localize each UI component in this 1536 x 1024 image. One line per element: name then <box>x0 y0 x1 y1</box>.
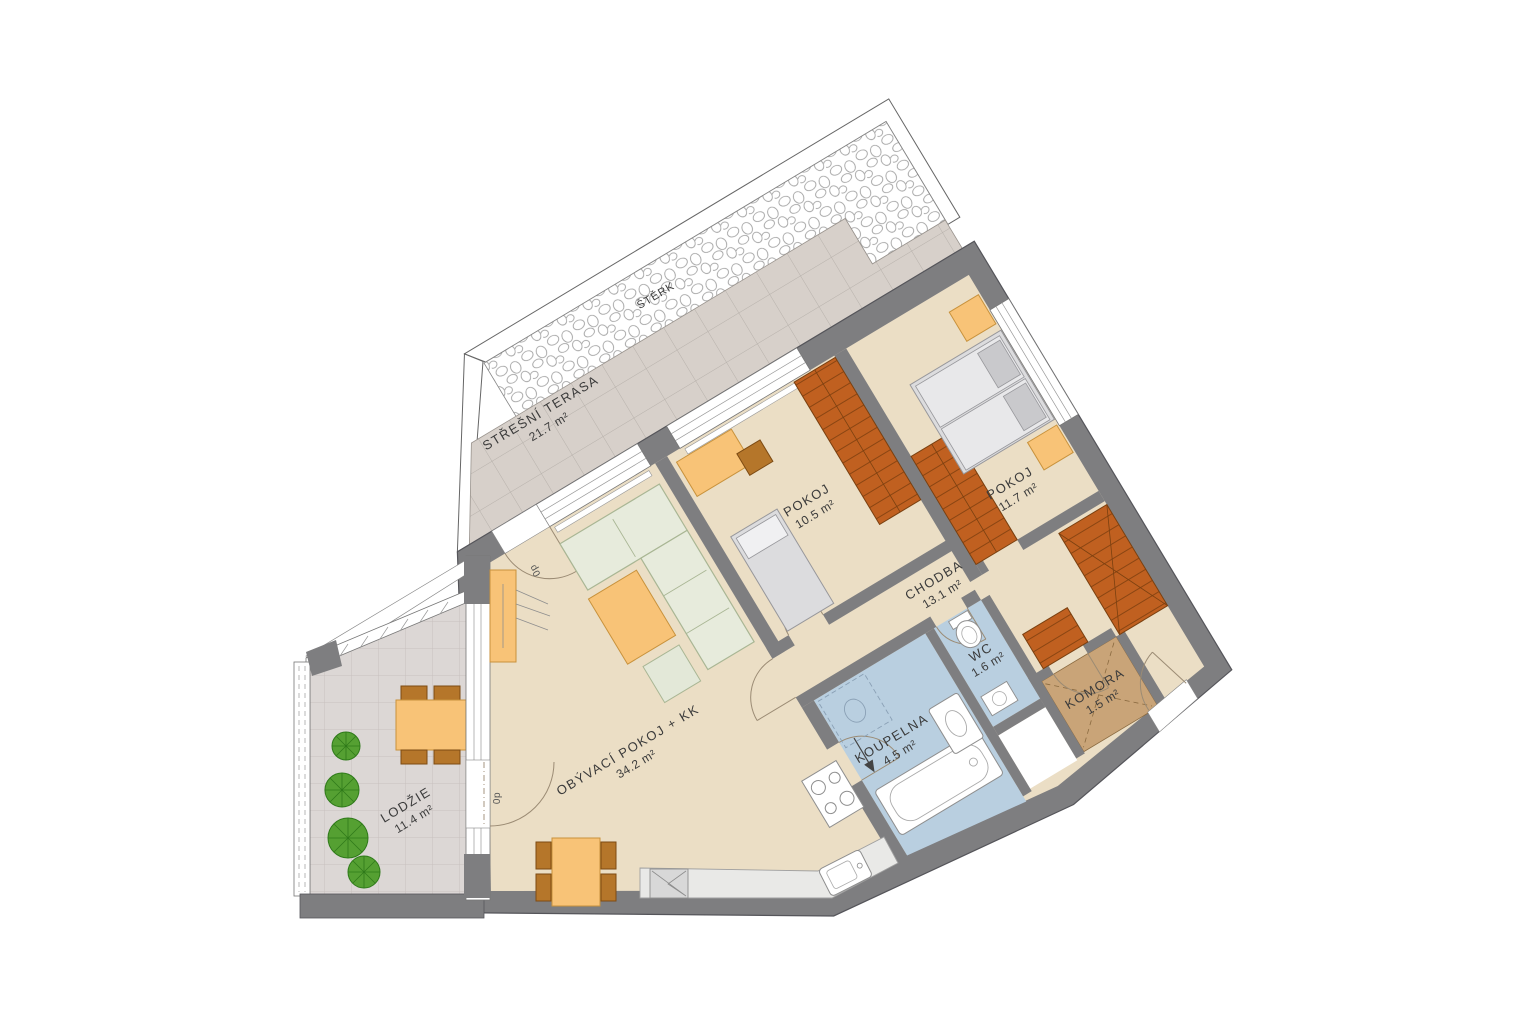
dining-chair-1 <box>536 842 551 869</box>
dining-chair-4 <box>601 874 616 901</box>
dining-chair-3 <box>601 842 616 869</box>
plant-3 <box>328 818 368 858</box>
plant-1 <box>332 732 360 760</box>
loggia-chair-2 <box>434 686 460 700</box>
dining-chair-2 <box>536 874 551 901</box>
plant-4 <box>348 856 380 888</box>
floorplan-page: STŘEŠNÍ TERASA 21.7 m² ŠTĚRK <box>0 0 1536 1024</box>
glass-wall-stub-bottom <box>464 854 490 898</box>
loggia-window-band <box>466 556 490 900</box>
loggia-bottom-wall <box>300 894 484 918</box>
loggia-left-railing <box>294 662 310 896</box>
loggia-chair-3 <box>401 750 427 764</box>
dining-table <box>552 838 600 906</box>
loggia-chair-4 <box>434 750 460 764</box>
door-loggia-label: 0p <box>492 792 503 804</box>
plant-2 <box>325 773 359 807</box>
kitchen-appliance <box>650 869 688 898</box>
floorplan-canvas: STŘEŠNÍ TERASA 21.7 m² ŠTĚRK <box>0 0 1536 1024</box>
loggia-table <box>396 700 466 750</box>
loggia: LODŽIE 11.4 m² <box>294 560 484 918</box>
loggia-chair-1 <box>401 686 427 700</box>
glass-wall-stub-top <box>464 556 490 604</box>
